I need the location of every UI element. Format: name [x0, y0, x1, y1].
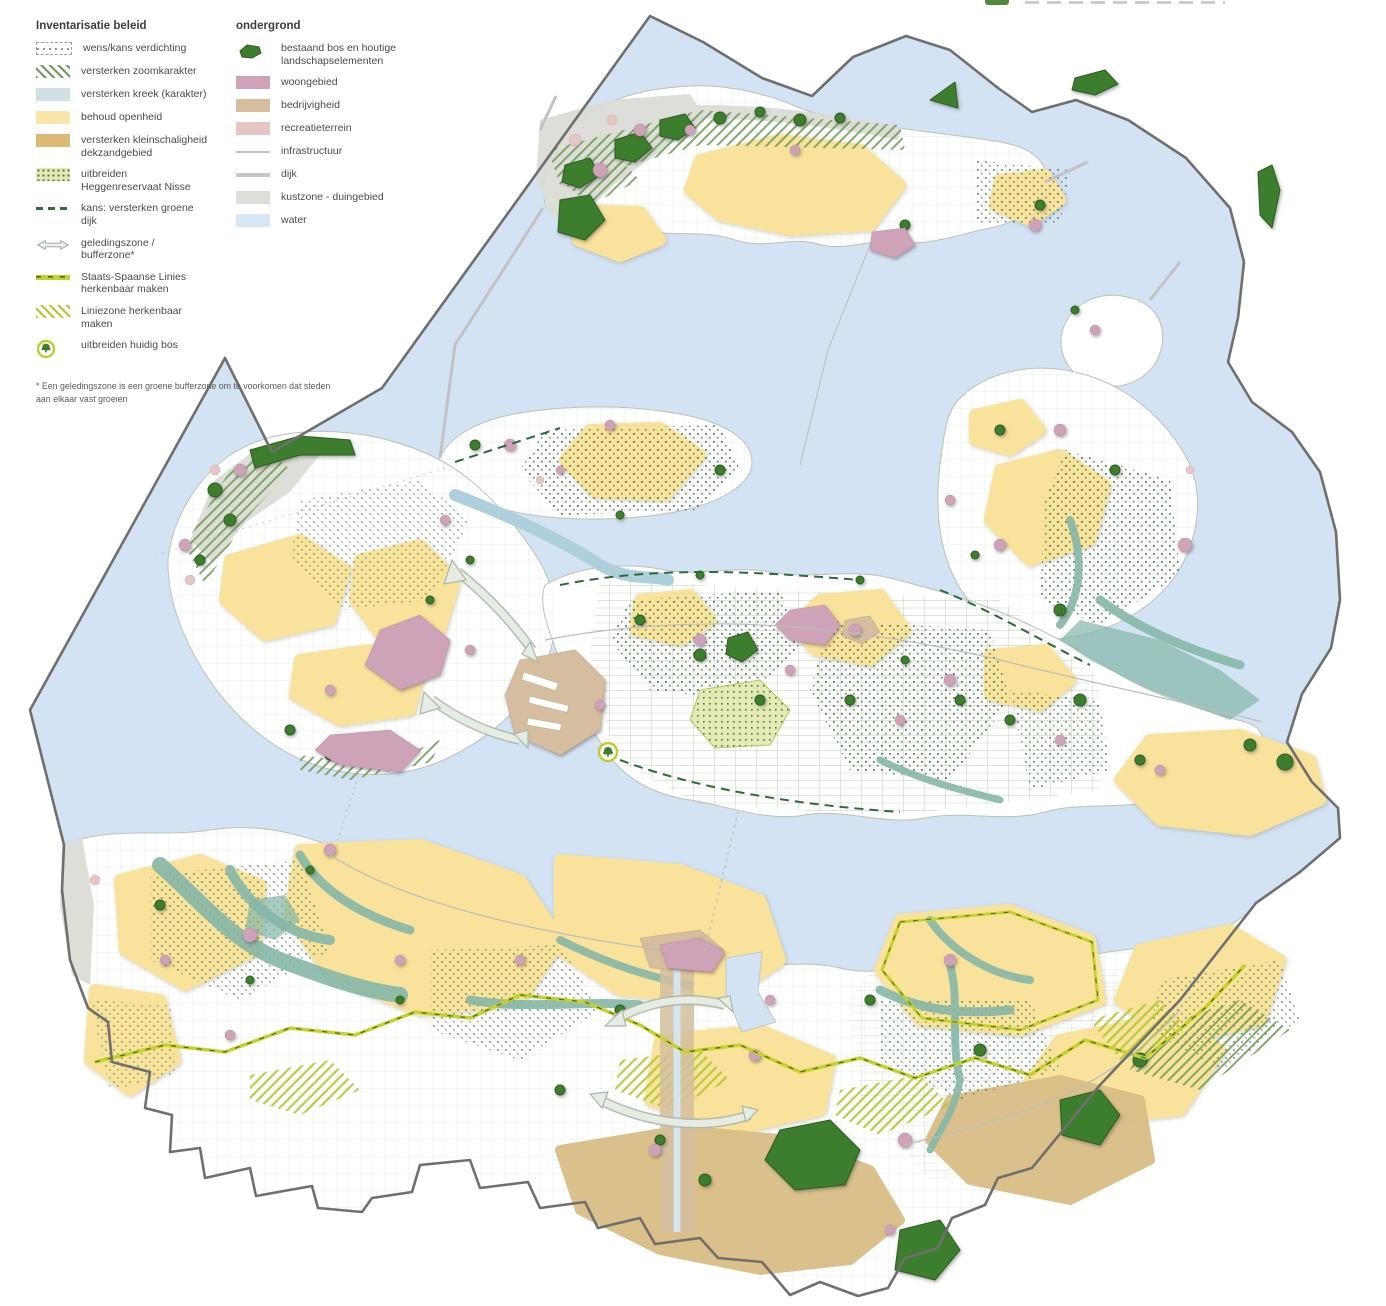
legend-item-label: wens/kans verdichting — [83, 42, 186, 55]
legend-item-liniezone: Liniezone herkenbaar maken — [36, 305, 208, 330]
legend-item-label: woongebied — [281, 76, 338, 89]
lime-speckle-swatch — [36, 168, 70, 181]
legend-item-bestaand-bos: bestaand bos en houtige landschapselemen… — [236, 42, 422, 67]
legend-item-label: Liniezone herkenbaar maken — [81, 305, 208, 330]
pink-swatch — [236, 76, 270, 89]
legend-item-heggenreservaat: uitbreiden Heggenreservaat Nisse — [36, 168, 208, 193]
legend-item-uitbreiden-bos: uitbreiden huidig bos — [36, 339, 208, 357]
green-dashed-line-swatch — [36, 207, 70, 210]
legend-footnote: * Een geledingszone is een groene buffer… — [36, 380, 336, 406]
legend-item-groene-dijk: kans: versterken groene dijk — [36, 202, 208, 227]
ochre-swatch — [36, 134, 70, 147]
light-blue-swatch — [236, 214, 270, 227]
legend-item-label: kustzone - duingebied — [281, 191, 384, 204]
legend-item-label: kans: versterken groene dijk — [81, 202, 208, 227]
legend-item-label: versterken kleinschaligheid dekzandgebie… — [81, 134, 208, 159]
legend-item-infrastructuur: infrastructuur — [236, 145, 422, 159]
legend-item-label: infrastructuur — [281, 145, 342, 158]
legend-column-ondergrond: ondergrond bestaand bos en houtige lands… — [236, 20, 422, 366]
thick-gray-line-swatch — [236, 173, 270, 177]
legend-item-label: recreatieterrein — [281, 122, 352, 135]
legend-item-label: versterken kreek (karakter) — [81, 88, 206, 101]
map-page: Inventarisatie beleid wens/kans verdicht… — [0, 0, 1386, 1306]
lime-hatch-swatch — [36, 305, 70, 318]
pale-yellow-swatch — [36, 111, 70, 124]
legend-item-label: bedrijvigheid — [281, 99, 340, 112]
clipped-illegible-text — [1025, 1, 1225, 4]
legend-item-staats-spaanse-linies: Staats-Spaanse Linies herkenbaar maken — [36, 271, 208, 296]
lime-line-swatch — [36, 275, 70, 280]
clipped-green-swatch — [985, 0, 1009, 5]
legend-item-label: geledingszone / bufferzone* — [81, 237, 208, 262]
tan-swatch — [236, 99, 270, 112]
legend-column-inventarisatie: Inventarisatie beleid wens/kans verdicht… — [36, 20, 208, 366]
legend-item-label: versterken zoomkarakter — [81, 65, 197, 78]
legend-item-label: water — [281, 214, 307, 227]
legend-item-label: dijk — [281, 168, 297, 181]
double-arrow-icon — [36, 237, 70, 255]
legend-item-label: Staats-Spaanse Linies herkenbaar maken — [81, 271, 208, 296]
legend-item-woongebied: woongebied — [236, 76, 422, 90]
legend: Inventarisatie beleid wens/kans verdicht… — [36, 20, 426, 406]
pale-blue-swatch — [36, 88, 70, 101]
legend-item-label: behoud openheid — [81, 111, 162, 124]
clipped-top-fragment — [930, 0, 1250, 6]
light-gray-swatch — [236, 191, 270, 204]
tree-circle-icon — [36, 339, 70, 357]
legend-item-kreek: versterken kreek (karakter) — [36, 88, 208, 102]
legend-item-geledingszone: geledingszone / bufferzone* — [36, 237, 208, 262]
forest-blob-icon — [236, 42, 270, 60]
legend-item-kleinschaligheid: versterken kleinschaligheid dekzandgebie… — [36, 134, 208, 159]
legend-item-bedrijvigheid: bedrijvigheid — [236, 99, 422, 113]
green-hatch-swatch — [36, 65, 70, 78]
legend-item-recreatieterrein: recreatieterrein — [236, 122, 422, 136]
uitbreiden-bos-icon — [599, 743, 617, 761]
legend-item-verdichting: wens/kans verdichting — [36, 42, 208, 56]
legend-item-label: uitbreiden Heggenreservaat Nisse — [81, 168, 208, 193]
legend-title-inventarisatie: Inventarisatie beleid — [36, 20, 208, 32]
legend-item-label: uitbreiden huidig bos — [81, 339, 178, 352]
legend-item-kustzone: kustzone - duingebied — [236, 191, 422, 205]
verdichting-swatch — [36, 42, 72, 55]
legend-item-zoomkarakter: versterken zoomkarakter — [36, 65, 208, 79]
legend-item-dijk: dijk — [236, 168, 422, 182]
legend-item-label: bestaand bos en houtige landschapselemen… — [281, 42, 422, 67]
legend-item-openheid: behoud openheid — [36, 111, 208, 125]
legend-title-ondergrond: ondergrond — [236, 20, 422, 32]
legend-item-water: water — [236, 214, 422, 228]
rose-swatch — [236, 122, 270, 135]
thin-gray-line-swatch — [236, 151, 270, 153]
